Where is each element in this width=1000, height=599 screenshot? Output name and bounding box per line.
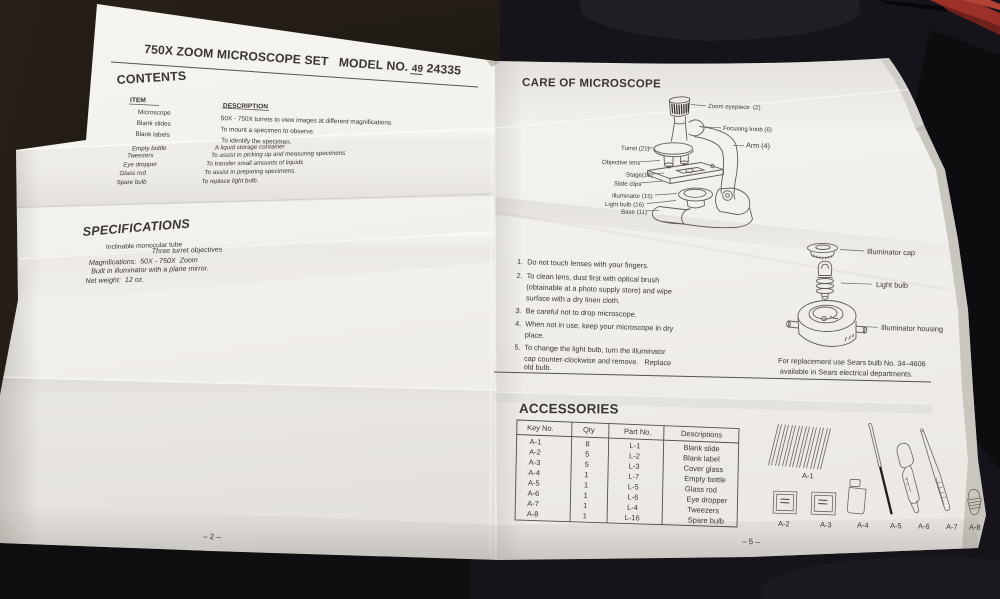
svg-text:1: 1 — [583, 491, 588, 500]
svg-text:Blank slides: Blank slides — [137, 120, 171, 128]
svg-text:A-5: A-5 — [528, 478, 540, 487]
svg-text:Arm (4): Arm (4) — [746, 141, 770, 151]
svg-text:L-1: L-1 — [629, 441, 640, 450]
svg-text:Light bulb: Light bulb — [876, 280, 908, 290]
svg-text:Slide clips: Slide clips — [614, 181, 642, 188]
svg-text:Glass rod: Glass rod — [685, 484, 717, 494]
svg-text:Spare bulb: Spare bulb — [117, 179, 148, 187]
svg-text:ACCESSORIES: ACCESSORIES — [519, 401, 619, 417]
svg-text:A-3: A-3 — [820, 520, 832, 529]
svg-text:Microscope: Microscope — [138, 109, 171, 117]
svg-text:5: 5 — [585, 450, 590, 459]
svg-text:A-5: A-5 — [890, 521, 902, 530]
svg-text:Blank labels: Blank labels — [135, 131, 170, 139]
svg-text:CARE OF MICROSCOPE: CARE OF MICROSCOPE — [522, 77, 661, 90]
svg-text:A-1: A-1 — [802, 471, 814, 480]
svg-text:Illuminator (15): Illuminator (15) — [612, 193, 653, 201]
svg-text:1: 1 — [583, 501, 588, 510]
svg-text:A-1: A-1 — [529, 437, 541, 446]
svg-text:L-2: L-2 — [629, 451, 640, 460]
svg-text:old bulb.: old bulb. — [524, 362, 552, 372]
svg-text:Qty: Qty — [583, 425, 595, 434]
svg-text:Stage(18): Stage(18) — [626, 172, 653, 179]
svg-text:A-7: A-7 — [946, 522, 958, 531]
svg-text:A-8: A-8 — [969, 523, 981, 532]
svg-text:1: 1 — [583, 511, 588, 520]
svg-text:A-6: A-6 — [527, 489, 539, 498]
svg-text:Blank label: Blank label — [683, 453, 720, 463]
svg-text:8: 8 — [585, 439, 590, 448]
svg-text:Tweezers: Tweezers — [687, 505, 720, 515]
svg-text:L-4: L-4 — [627, 503, 638, 512]
svg-text:A-2: A-2 — [778, 519, 790, 528]
svg-text:Blank slide: Blank slide — [683, 443, 720, 453]
svg-text:L-7: L-7 — [628, 472, 639, 481]
svg-text:Descriptions: Descriptions — [681, 429, 723, 440]
svg-text:A-3: A-3 — [529, 458, 541, 467]
svg-text:A-2: A-2 — [529, 447, 541, 456]
svg-text:– 2 –: – 2 – — [203, 532, 221, 541]
svg-text:A-4: A-4 — [528, 468, 540, 477]
svg-text:Tweezers: Tweezers — [127, 152, 153, 159]
svg-text:Objective lens: Objective lens — [602, 159, 640, 167]
svg-text:Cover glass: Cover glass — [683, 464, 723, 475]
svg-text:Net weight: 12 oz.: Net weight: 12 oz. — [85, 276, 144, 286]
svg-text:1: 1 — [584, 480, 589, 489]
svg-text:– 5 –: – 5 – — [742, 537, 760, 546]
svg-text:Spare bulb: Spare bulb — [687, 515, 724, 525]
svg-text:A-8: A-8 — [527, 509, 539, 518]
svg-text:Glass rod: Glass rod — [119, 170, 146, 177]
svg-text:place.: place. — [525, 330, 545, 340]
svg-text:L-6: L-6 — [627, 492, 638, 501]
svg-text:1: 1 — [584, 470, 589, 479]
svg-text:To replace light bulb.: To replace light bulb. — [202, 177, 259, 185]
svg-text:Part No.: Part No. — [624, 427, 652, 437]
svg-text:5: 5 — [585, 460, 590, 469]
svg-text:Turret (21): Turret (21) — [621, 145, 650, 152]
svg-text:Light bulb (16): Light bulb (16) — [605, 201, 644, 209]
svg-text:Eye dropper: Eye dropper — [123, 161, 158, 169]
svg-text:Zoom eyepiece (2): Zoom eyepiece (2) — [708, 103, 761, 111]
svg-text:L-5: L-5 — [628, 482, 639, 491]
svg-text:Base (11): Base (11) — [621, 209, 647, 216]
svg-text:A-7: A-7 — [527, 499, 539, 508]
svg-text:Empty bottle: Empty bottle — [684, 474, 726, 485]
svg-text:L-3: L-3 — [629, 462, 640, 471]
svg-text:Illuminator cap: Illuminator cap — [867, 247, 915, 257]
svg-text:Key No.: Key No. — [527, 423, 554, 433]
svg-text:Illuminator housing: Illuminator housing — [881, 323, 943, 334]
svg-text:Eye dropper: Eye dropper — [686, 495, 728, 506]
svg-text:ITEM: ITEM — [130, 97, 146, 104]
svg-text:A-4: A-4 — [857, 521, 869, 530]
svg-text:A-6: A-6 — [918, 522, 930, 531]
svg-text:L-16: L-16 — [625, 513, 640, 523]
